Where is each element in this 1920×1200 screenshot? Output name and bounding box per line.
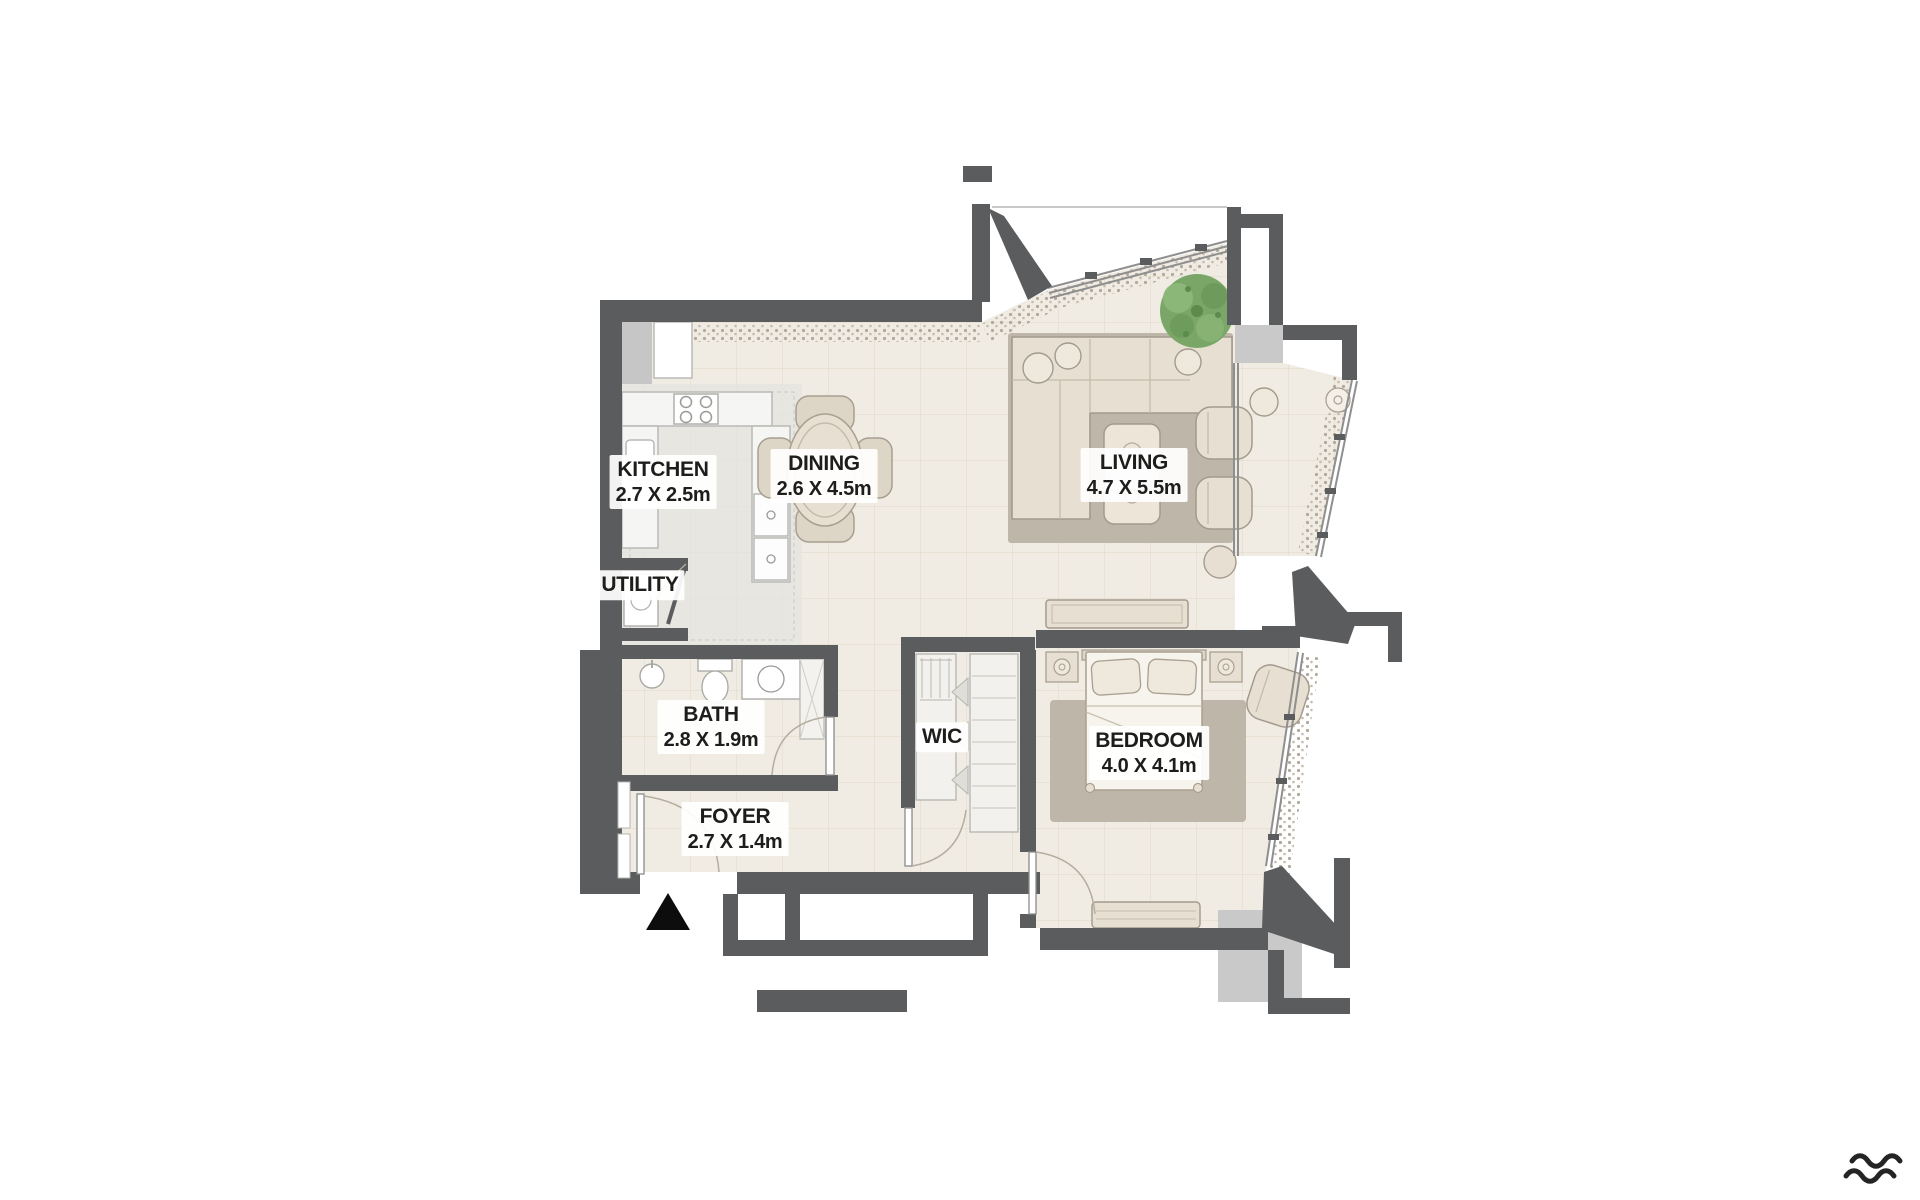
- bench: [1092, 902, 1200, 928]
- room-label-bath: BATH 2.8 X 1.9m: [658, 700, 765, 754]
- plant-tree-icon: [1160, 274, 1234, 348]
- room-label-utility: UTILITY: [595, 570, 684, 600]
- room-label-wic: WIC: [916, 722, 968, 752]
- tv-console: [1046, 600, 1188, 628]
- waves-logo-icon: [1846, 1156, 1900, 1182]
- room-label-dining: DINING 2.6 X 4.5m: [771, 449, 878, 503]
- room-label-bedroom: BEDROOM 4.0 X 4.1m: [1089, 726, 1209, 780]
- floor-plan-canvas: [0, 0, 1920, 1200]
- room-label-foyer: FOYER 2.7 X 1.4m: [682, 802, 789, 856]
- room-label-kitchen: KITCHEN 2.7 X 2.5m: [610, 455, 717, 509]
- floor-plan: KITCHEN 2.7 X 2.5m DINING 2.6 X 4.5m LIV…: [0, 0, 1920, 1200]
- entrance-triangle-icon: [646, 893, 690, 930]
- room-label-living: LIVING 4.7 X 5.5m: [1081, 448, 1188, 502]
